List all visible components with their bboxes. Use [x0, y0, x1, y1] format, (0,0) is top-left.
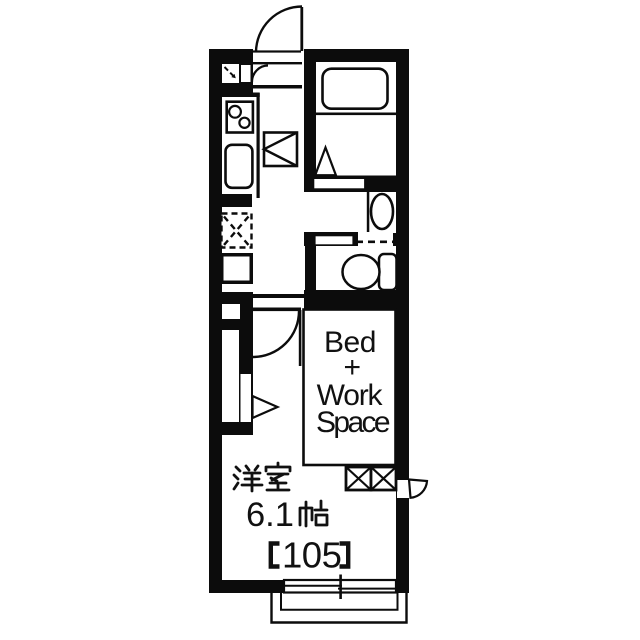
svg-text:Space: Space [316, 406, 390, 439]
svg-text:6.1: 6.1 [246, 496, 294, 534]
svg-text:105: 105 [282, 535, 341, 576]
